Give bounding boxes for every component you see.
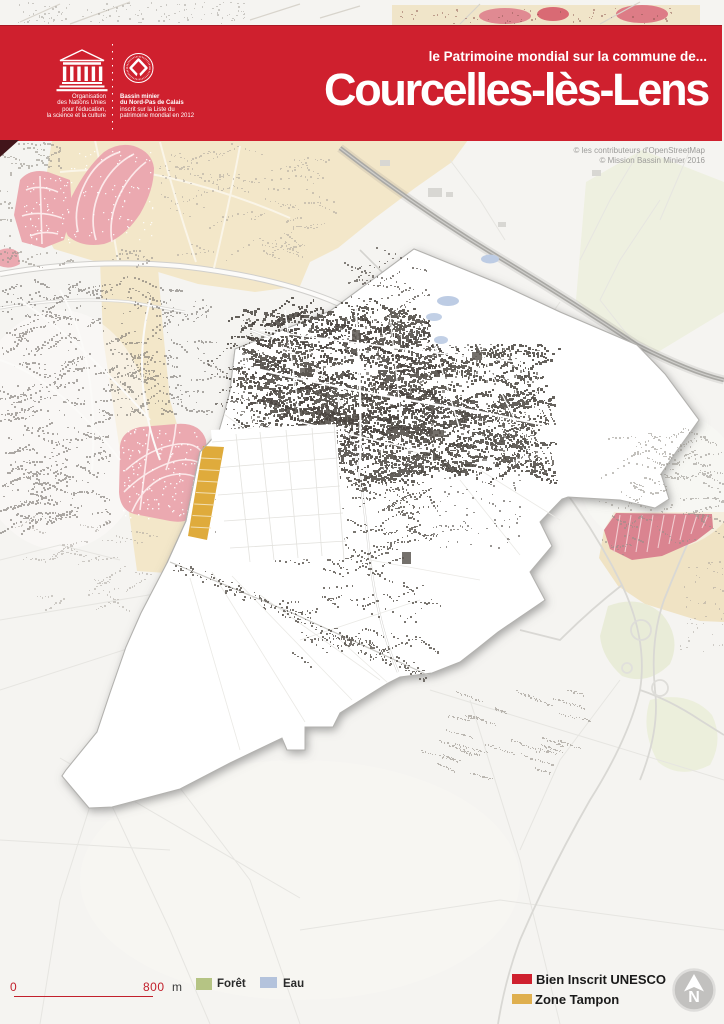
svg-text:N: N [688,989,700,1006]
